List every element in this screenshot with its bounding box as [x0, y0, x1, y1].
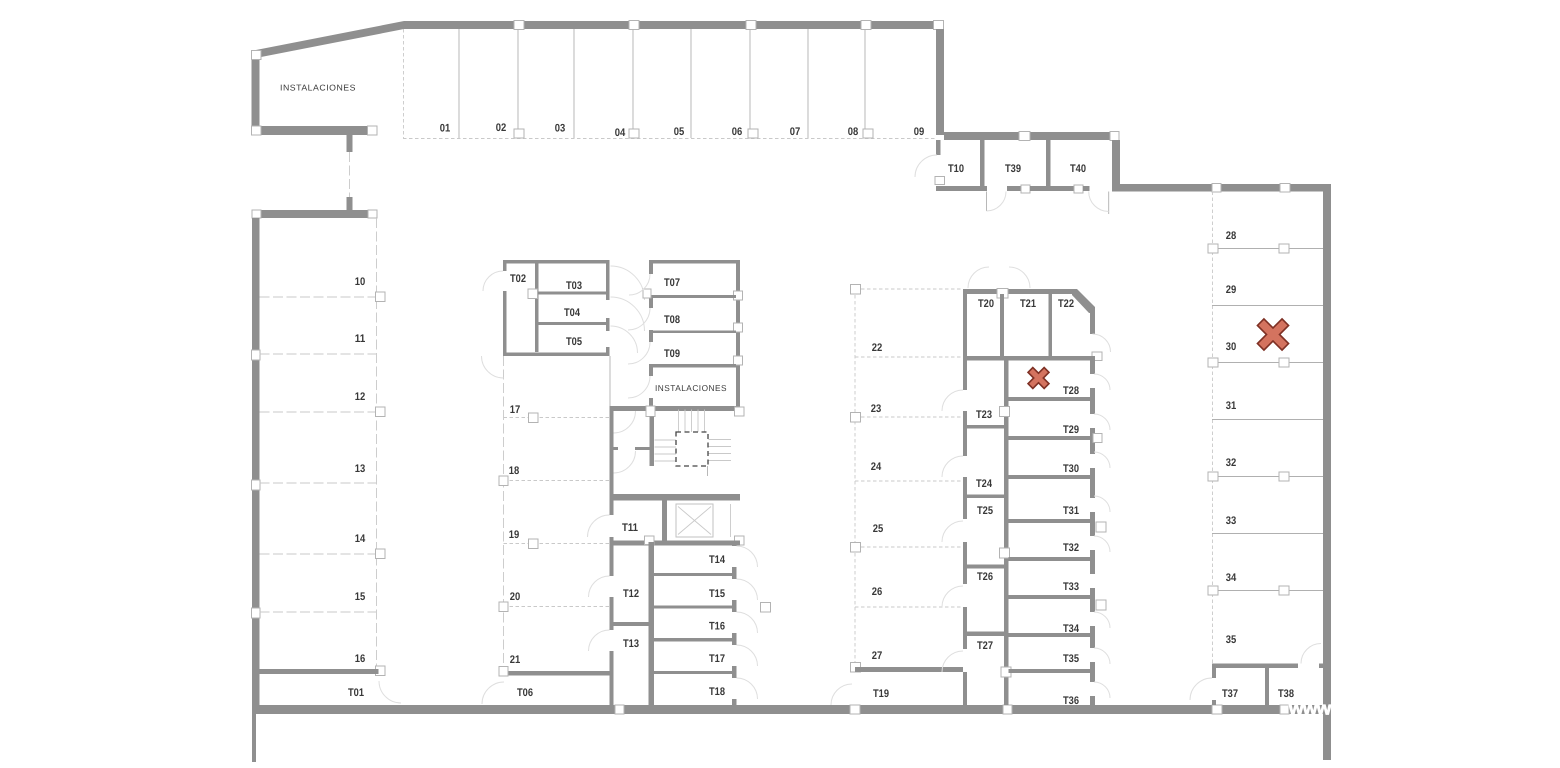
svg-text:T03: T03	[566, 280, 582, 292]
svg-text:T07: T07	[664, 277, 680, 289]
svg-text:INSTALACIONES: INSTALACIONES	[655, 383, 727, 393]
svg-text:10: 10	[355, 276, 366, 288]
svg-text:19: 19	[509, 529, 520, 541]
svg-text:T14: T14	[709, 554, 726, 566]
svg-text:T22: T22	[1058, 298, 1074, 310]
svg-text:T06: T06	[517, 687, 533, 699]
svg-text:T04: T04	[564, 307, 581, 319]
svg-text:28: 28	[1226, 230, 1237, 242]
svg-text:T34: T34	[1063, 623, 1080, 635]
svg-text:T24: T24	[976, 478, 993, 490]
svg-text:30: 30	[1226, 341, 1237, 353]
svg-text:T23: T23	[976, 409, 992, 421]
svg-text:T28: T28	[1063, 385, 1079, 397]
svg-text:T09: T09	[664, 348, 680, 360]
svg-text:T35: T35	[1063, 653, 1079, 665]
svg-text:T27: T27	[977, 640, 993, 652]
svg-text:06: 06	[732, 126, 743, 138]
svg-text:22: 22	[872, 342, 883, 354]
svg-text:T05: T05	[566, 336, 582, 348]
svg-text:T13: T13	[623, 638, 639, 650]
svg-text:20: 20	[510, 591, 521, 603]
svg-text:26: 26	[872, 586, 883, 598]
svg-text:T36: T36	[1063, 695, 1079, 707]
svg-text:T30: T30	[1063, 463, 1079, 475]
svg-text:T18: T18	[709, 686, 725, 698]
svg-text:T29: T29	[1063, 424, 1079, 436]
svg-text:INSTALACIONES: INSTALACIONES	[280, 83, 356, 93]
svg-text:T25: T25	[977, 505, 993, 517]
svg-text:05: 05	[674, 126, 685, 138]
svg-text:32: 32	[1226, 457, 1237, 469]
svg-text:16: 16	[355, 653, 366, 665]
svg-text:T02: T02	[510, 273, 526, 285]
svg-text:11: 11	[355, 333, 366, 345]
svg-text:07: 07	[790, 126, 801, 138]
svg-text:13: 13	[355, 463, 366, 475]
svg-text:08: 08	[848, 126, 859, 138]
svg-text:23: 23	[871, 403, 882, 415]
svg-text:27: 27	[872, 650, 883, 662]
svg-text:35: 35	[1226, 634, 1237, 646]
svg-text:29: 29	[1226, 284, 1237, 296]
svg-text:T19: T19	[873, 688, 889, 700]
svg-text:T37: T37	[1222, 688, 1238, 700]
svg-text:04: 04	[615, 127, 626, 139]
svg-text:T15: T15	[709, 588, 725, 600]
svg-text:T16: T16	[709, 621, 725, 633]
svg-text:T17: T17	[709, 653, 725, 665]
svg-text:17: 17	[510, 404, 521, 416]
svg-text:T39: T39	[1005, 163, 1021, 175]
svg-text:T26: T26	[977, 571, 993, 583]
svg-text:18: 18	[509, 465, 520, 477]
svg-text:12: 12	[355, 391, 366, 403]
svg-text:T11: T11	[622, 522, 638, 534]
svg-text:03: 03	[555, 123, 566, 135]
svg-text:www: www	[1288, 698, 1332, 719]
svg-text:15: 15	[355, 591, 366, 603]
svg-text:T33: T33	[1063, 581, 1079, 593]
svg-text:21: 21	[510, 654, 521, 666]
svg-text:T32: T32	[1063, 542, 1079, 554]
svg-text:34: 34	[1226, 572, 1237, 584]
svg-text:T31: T31	[1063, 505, 1079, 517]
svg-text:T20: T20	[978, 298, 994, 310]
svg-text:T08: T08	[664, 314, 680, 326]
svg-text:01: 01	[440, 123, 451, 135]
svg-text:T12: T12	[623, 588, 639, 600]
svg-text:31: 31	[1226, 400, 1237, 412]
svg-text:25: 25	[873, 523, 884, 535]
svg-text:T01: T01	[348, 687, 364, 699]
svg-text:T21: T21	[1020, 298, 1036, 310]
svg-text:T10: T10	[948, 163, 964, 175]
svg-text:24: 24	[871, 461, 882, 473]
svg-text:14: 14	[355, 533, 366, 545]
svg-text:33: 33	[1226, 515, 1237, 527]
svg-text:02: 02	[496, 122, 507, 134]
svg-text:09: 09	[914, 126, 925, 138]
svg-text:T40: T40	[1070, 163, 1086, 175]
